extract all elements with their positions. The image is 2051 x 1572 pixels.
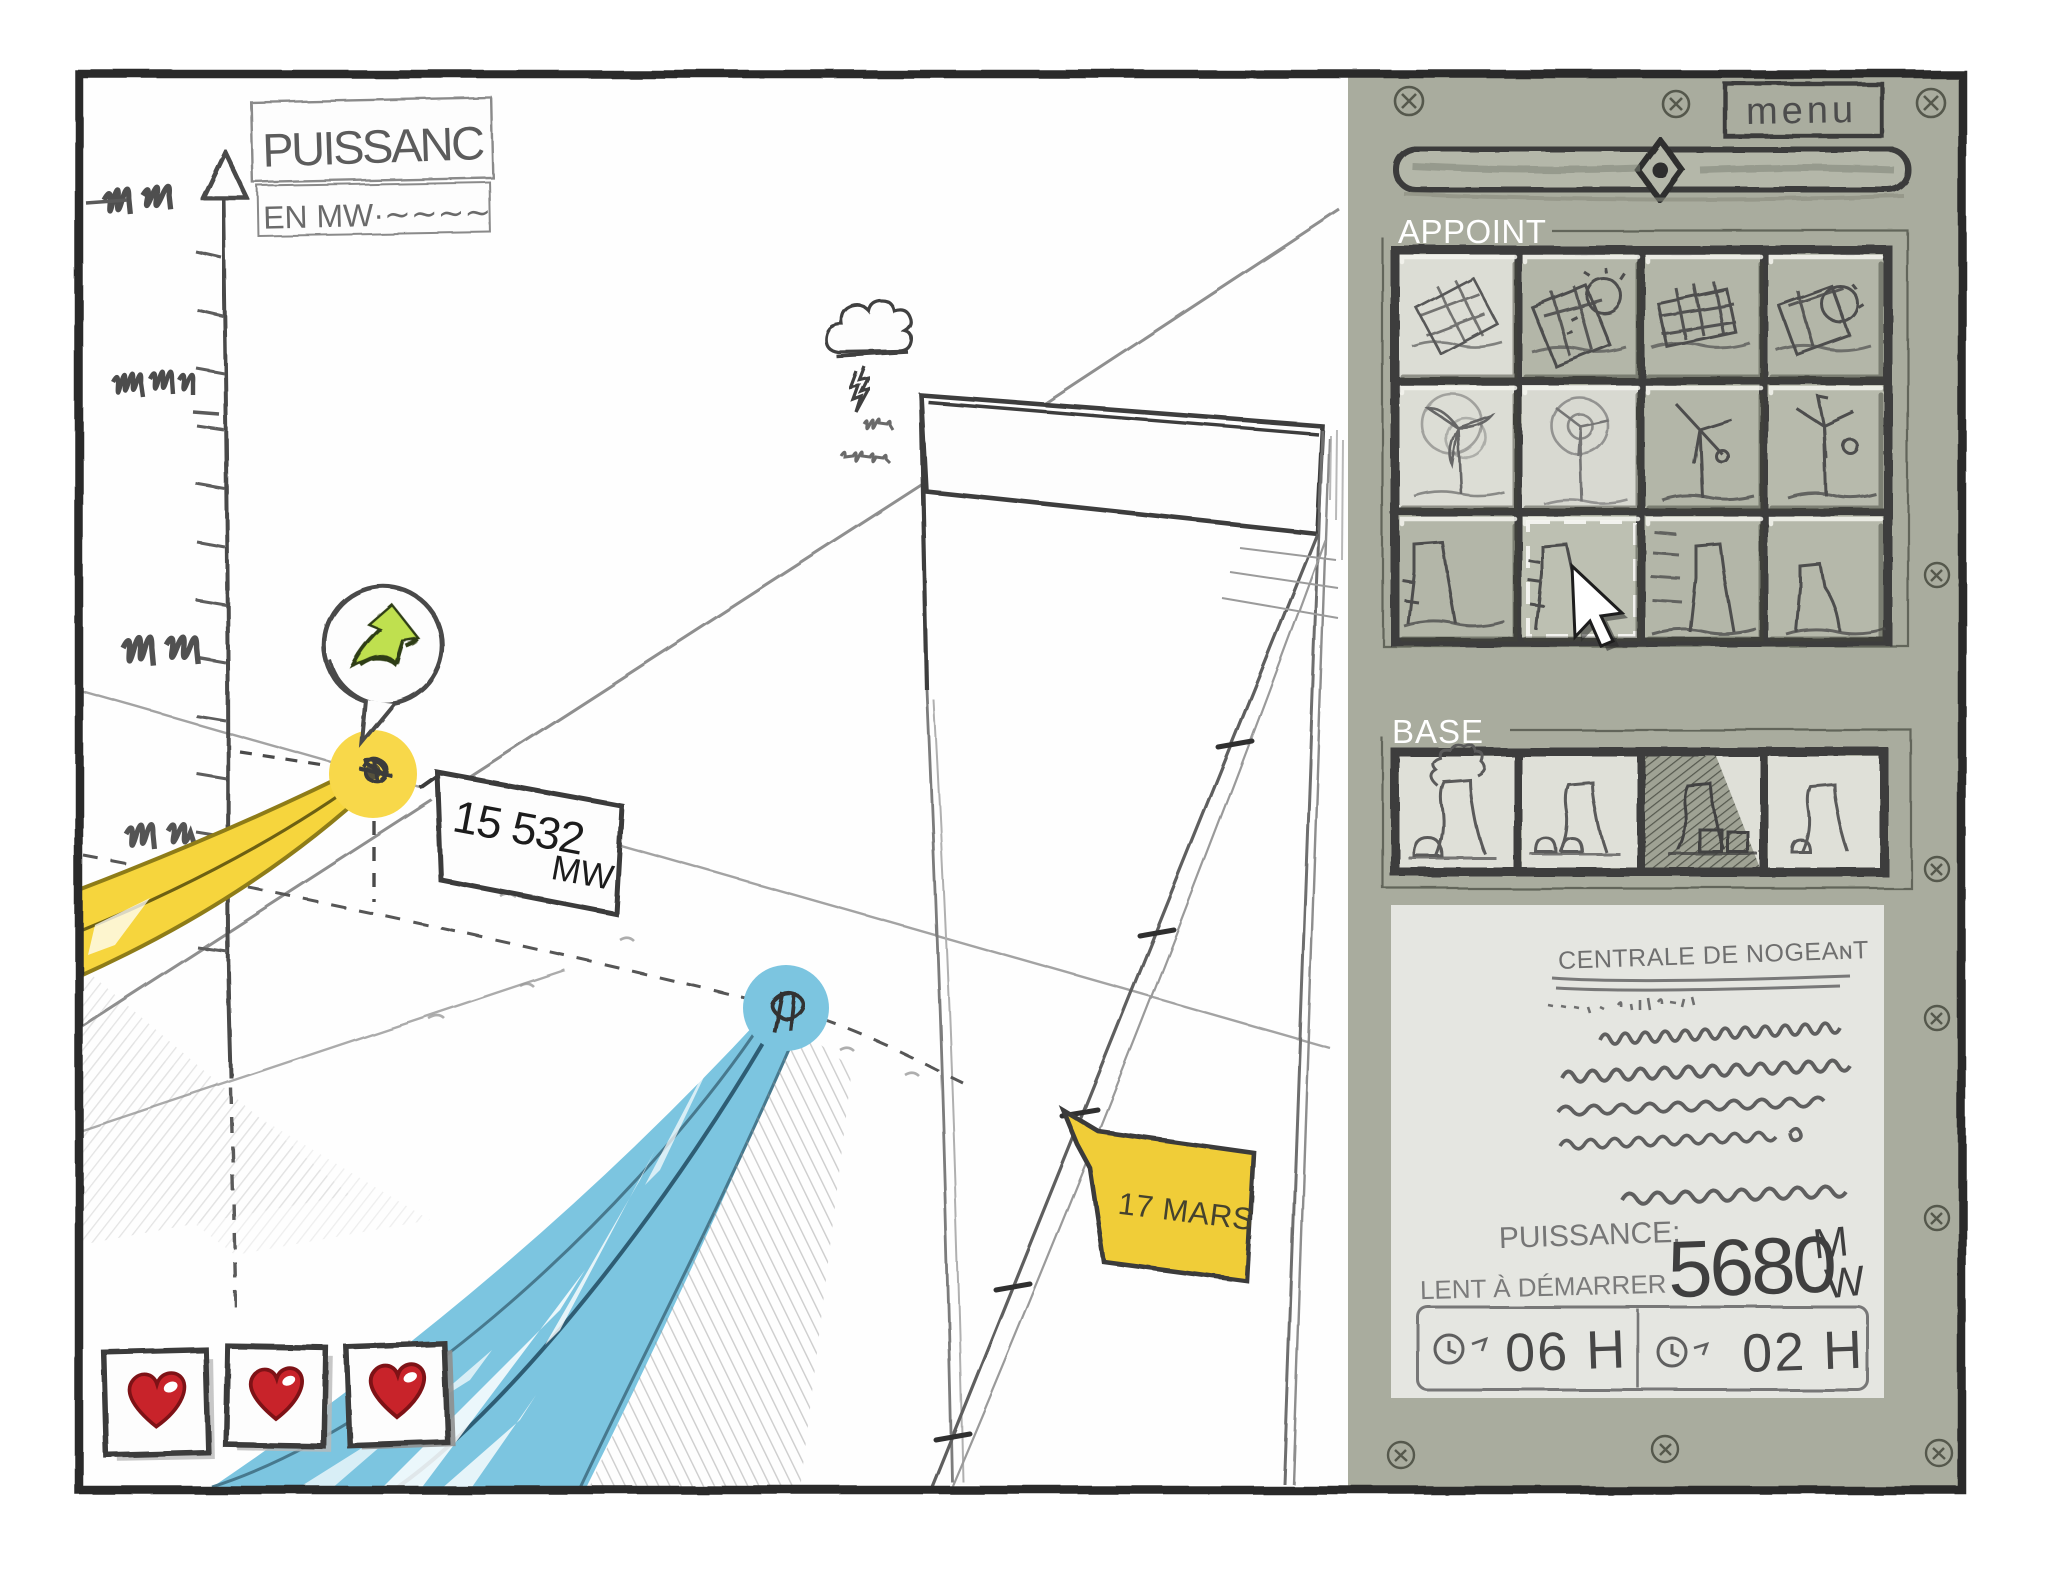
svg-text:PUISSANC: PUISSANC xyxy=(261,116,485,177)
svg-text:PUISSANCE:: PUISSANCE: xyxy=(1498,1216,1681,1255)
svg-text:5680: 5680 xyxy=(1666,1219,1835,1314)
svg-text:EN MW·∼∼∼∼: EN MW·∼∼∼∼ xyxy=(263,194,492,236)
svg-text:02 H: 02 H xyxy=(1741,1320,1865,1384)
svg-text:06 H: 06 H xyxy=(1504,1319,1628,1383)
svg-text:APPOINT: APPOINT xyxy=(1398,213,1546,250)
svg-text:menu: menu xyxy=(1746,89,1858,133)
svg-text:W: W xyxy=(1823,1257,1868,1308)
